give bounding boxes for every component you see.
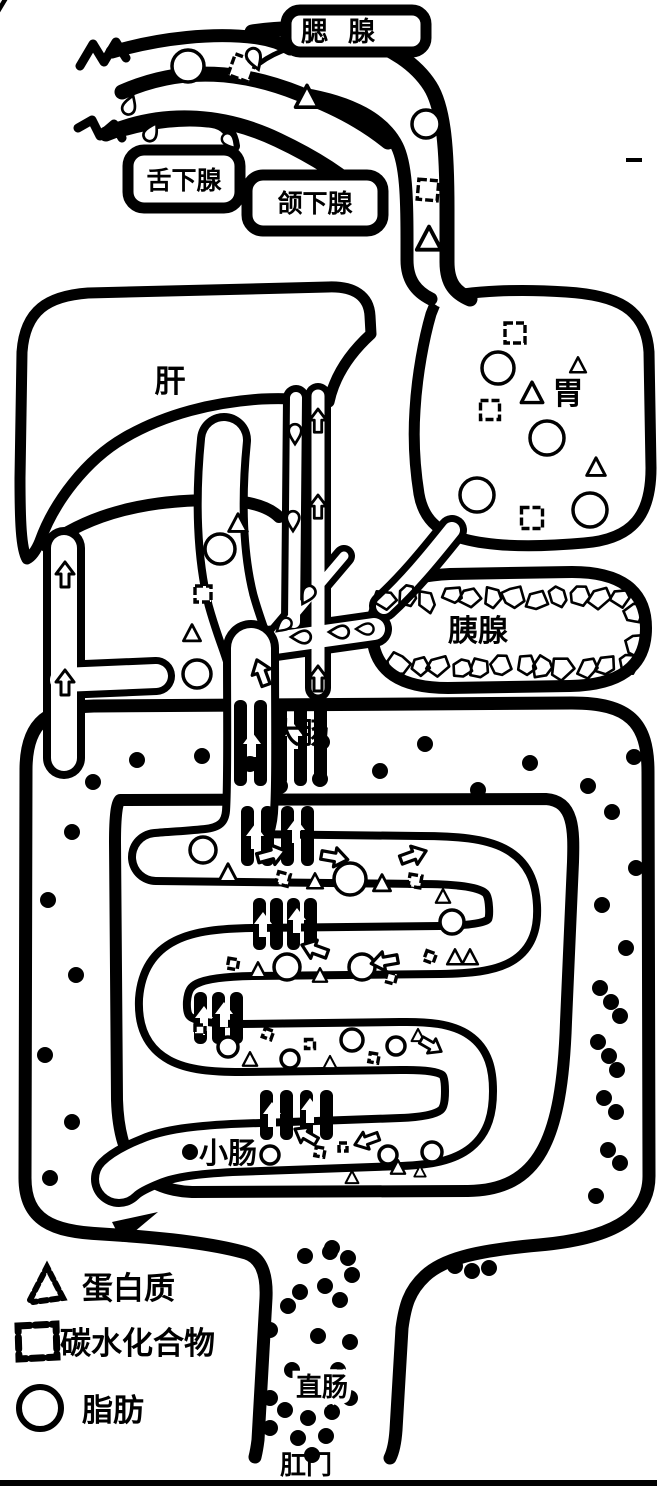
waste-dot <box>280 1298 296 1314</box>
waste-dot <box>340 1250 356 1266</box>
fat-circle-symbol <box>218 1037 238 1057</box>
waste-dot <box>522 755 538 771</box>
villi-bar <box>280 1090 293 1140</box>
carbohydrate-square-symbol <box>408 874 422 888</box>
fat-circle-symbol <box>172 50 204 82</box>
waste-dot <box>342 1334 358 1350</box>
waste-dot <box>612 1008 628 1024</box>
waste-dot <box>594 897 610 913</box>
carbohydrate-square-symbol <box>262 1028 274 1040</box>
legend: 蛋白质 碳水化合物 脂肪 <box>18 1267 215 1429</box>
villi-bar <box>320 1090 333 1140</box>
submandibular-label: 颌下腺 <box>277 190 353 218</box>
waste-dot <box>318 1428 334 1444</box>
waste-dot <box>40 892 56 908</box>
waste-dot <box>481 1260 497 1276</box>
carbohydrate-square-symbol <box>315 1147 325 1157</box>
legend-carbohydrate-label: 碳水化合物 <box>60 1326 215 1361</box>
waste-dot <box>64 824 80 840</box>
small-intestine-label: 小肠 <box>199 1137 257 1170</box>
pancreas-label: 胰腺 <box>448 615 509 648</box>
waste-dot <box>277 1402 293 1418</box>
waste-dot <box>592 980 608 996</box>
legend-protein-label: 蛋白质 <box>82 1271 175 1306</box>
digestive-system-diagram-page: 腮腺 舌下腺 颌下腺 肝 胃 胰腺 大肠 小肠 直肠 肛门 蛋白质 碳水化合物 … <box>0 0 657 1486</box>
waste-dot <box>628 860 644 876</box>
waste-dot <box>604 804 620 820</box>
fat-circle-symbol <box>261 1146 279 1164</box>
waste-dot <box>600 1142 616 1158</box>
waste-dot <box>317 1278 333 1294</box>
waste-dot <box>68 967 84 983</box>
open-triangle-symbol <box>0 0 8 8</box>
waste-dot <box>262 1322 278 1338</box>
waste-dot <box>312 771 328 787</box>
waste-dot <box>332 1292 348 1308</box>
fat-circle-symbol <box>274 954 300 980</box>
carbohydrate-square-symbol <box>369 1053 379 1063</box>
liver-branch-core <box>62 676 156 680</box>
waste-dot <box>322 1244 338 1260</box>
waste-dot <box>612 1155 628 1171</box>
waste-dot <box>601 1048 617 1064</box>
waste-dot <box>580 778 596 794</box>
waste-dot <box>182 1144 198 1160</box>
waste-dot <box>609 1062 625 1078</box>
waste-dot <box>64 1114 80 1130</box>
organ-outlines <box>20 10 651 1458</box>
villi-bar <box>301 806 314 866</box>
waste-dot <box>310 1328 326 1344</box>
fat-circle-symbol <box>183 660 211 688</box>
circle-icon <box>19 1387 61 1429</box>
waste-dot <box>608 1104 624 1120</box>
waste-dot <box>242 756 258 772</box>
waste-dot <box>470 782 486 798</box>
carbohydrate-square-symbol <box>227 958 239 970</box>
square-icon <box>18 1324 57 1359</box>
waste-dot <box>588 1188 604 1204</box>
fat-circle-symbol <box>190 837 216 863</box>
fat-circle-symbol <box>573 493 607 527</box>
carbohydrate-square-symbol <box>424 951 437 964</box>
waste-dot <box>194 748 210 764</box>
fat-circle-symbol <box>349 954 375 980</box>
fat-circle-symbol <box>482 352 514 384</box>
carbohydrate-square-symbol <box>505 323 525 343</box>
protein-triangle-symbol <box>183 625 200 641</box>
waste-dot <box>290 1430 306 1446</box>
waste-dot <box>85 774 101 790</box>
triangle-icon <box>30 1267 63 1302</box>
waste-dot <box>262 1420 278 1436</box>
waste-dot <box>447 1258 463 1274</box>
carbohydrate-square-symbol <box>417 179 439 201</box>
digestive-system-figure: 腮腺 舌下腺 颌下腺 肝 胃 胰腺 大肠 小肠 直肠 肛门 蛋白质 碳水化合物 … <box>0 0 657 1486</box>
upper-lip <box>112 36 290 52</box>
waste-dot <box>626 749 642 765</box>
carbohydrate-square-symbol <box>522 508 543 529</box>
waste-dot <box>590 1034 606 1050</box>
waste-dot <box>603 994 619 1010</box>
fat-circle-symbol <box>334 863 366 895</box>
scan-artifact-right-dash <box>626 158 642 162</box>
waste-dot <box>372 763 388 779</box>
waste-dot <box>297 1248 313 1264</box>
waste-dot <box>464 1263 480 1279</box>
legend-fat-label: 脂肪 <box>82 1393 144 1428</box>
waste-dot <box>262 1390 278 1406</box>
fat-circle-symbol <box>422 1142 442 1162</box>
liver-label: 肝 <box>155 364 186 399</box>
carbohydrate-square-symbol <box>195 1025 205 1035</box>
waste-dot <box>300 1410 316 1426</box>
parotid-label: 腮腺 <box>301 17 395 47</box>
waste-dot <box>292 1284 308 1300</box>
waste-dot <box>596 1090 612 1106</box>
fat-circle-symbol <box>460 478 494 512</box>
waste-dot <box>417 736 433 752</box>
carbohydrate-square-symbol <box>306 1040 315 1049</box>
waste-dot <box>129 752 145 768</box>
fat-circle-symbol <box>205 534 235 564</box>
fat-circle-symbol <box>412 110 440 138</box>
protein-triangle-symbol <box>417 227 441 250</box>
carbohydrate-square-symbol <box>481 401 500 420</box>
fat-circle-symbol <box>440 910 464 934</box>
carbohydrate-square-symbol <box>339 1143 347 1151</box>
scan-artifact-bottom-edge <box>0 1480 657 1486</box>
carbohydrate-square-symbol <box>195 586 211 602</box>
fat-circle-symbol <box>387 1037 405 1055</box>
esophagus-outer-wall <box>252 29 470 299</box>
fat-circle-symbol <box>379 1146 397 1164</box>
rectum-label: 直肠 <box>296 1372 348 1402</box>
stomach-label: 胃 <box>553 376 584 411</box>
fat-circle-symbol <box>341 1029 363 1051</box>
waste-dot <box>272 778 288 794</box>
fat-circle-symbol <box>530 421 564 455</box>
waste-dot <box>324 1404 340 1420</box>
sublingual-label: 舌下腺 <box>146 167 222 195</box>
anus-label: 肛门 <box>280 1450 332 1480</box>
fat-circle-symbol <box>281 1050 299 1068</box>
waste-dot <box>344 1267 360 1283</box>
waste-dot <box>42 1170 58 1186</box>
large-intestine-label: 大肠 <box>271 717 329 750</box>
waste-dot <box>618 940 634 956</box>
waste-dot <box>37 1047 53 1063</box>
